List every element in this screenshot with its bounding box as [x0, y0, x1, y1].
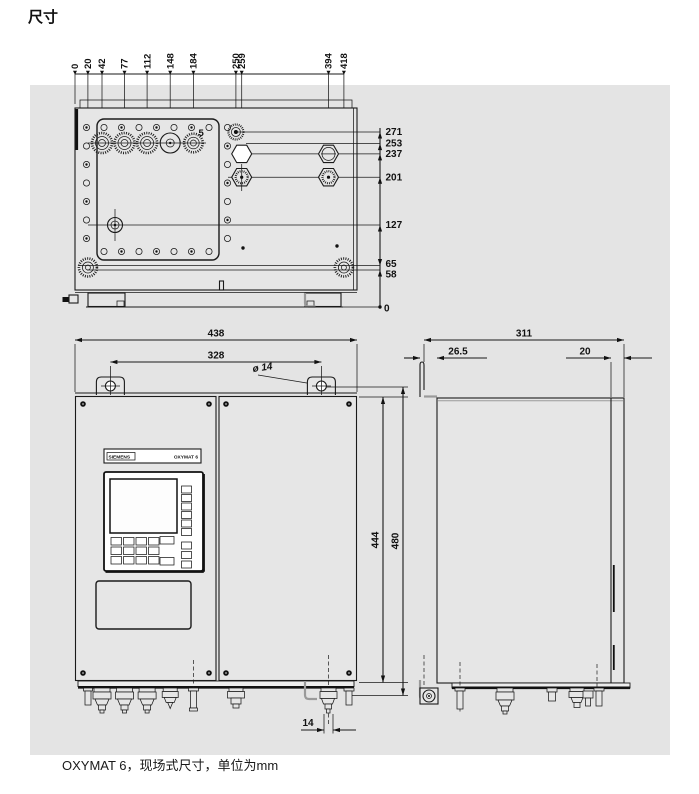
- function-key-column: [182, 542, 192, 568]
- dim-label: 480: [391, 532, 402, 549]
- control-panel: [104, 472, 204, 572]
- dimension-drawing: 尺寸 0 20 42 77 112 148 184 250 259 394 41…: [0, 0, 699, 794]
- dim-label: 328: [208, 351, 225, 362]
- dim-label: 418: [339, 53, 350, 69]
- figure-caption: OXYMAT 6，现场式尺寸，单位为mm: [62, 758, 278, 773]
- hex-gland: [319, 169, 339, 186]
- cabinet-side: [437, 398, 624, 683]
- dim-label: 444: [371, 531, 382, 548]
- dim-label: 26.5: [448, 347, 468, 358]
- brand-label: SIEMENS: [109, 454, 131, 460]
- item-number-label: 5: [199, 128, 205, 139]
- cover-plate: [83, 119, 230, 260]
- page: 尺寸 0 20 42 77 112 148 184 250 259 394 41…: [0, 0, 699, 794]
- dim-label: 271: [386, 127, 403, 138]
- hex-fitting: [319, 145, 339, 162]
- mounting-tab-left: [96, 377, 124, 395]
- display-screen: [110, 479, 177, 533]
- dim-label: 148: [165, 53, 176, 69]
- dim-label: 0: [70, 64, 81, 69]
- dim-label: 253: [386, 139, 403, 150]
- dim-label: 0: [384, 304, 390, 315]
- side-bottom-rail: [452, 683, 630, 688]
- dim-label: 20: [579, 347, 591, 358]
- dim-label: 14: [302, 718, 314, 729]
- model-label: OXYMAT 6: [174, 454, 198, 460]
- dim-label: 77: [120, 58, 131, 69]
- front-bottom-rail: [78, 681, 354, 687]
- dim-label: 127: [386, 220, 403, 231]
- dim-label: 42: [97, 58, 108, 69]
- dim-label: 65: [386, 259, 398, 270]
- dim-label: 311: [516, 329, 533, 340]
- page-title: 尺寸: [28, 8, 58, 26]
- dim-label: 259: [237, 53, 248, 69]
- center-tab: [220, 281, 224, 290]
- dim-label: 394: [324, 52, 335, 69]
- dim-label: 201: [386, 173, 403, 184]
- right-door: [219, 397, 357, 681]
- mounting-tab-right: [307, 377, 335, 395]
- dim-label: 20: [83, 58, 94, 69]
- brand-strip: SIEMENS OXYMAT 6: [104, 449, 201, 463]
- dim-label: 58: [386, 270, 398, 281]
- dim-label: 184: [189, 52, 200, 69]
- dim-label: 237: [386, 149, 403, 160]
- dim-label: 438: [208, 329, 225, 340]
- screw-dot: [335, 244, 338, 247]
- hex-plug: [232, 145, 252, 162]
- screw-dot: [241, 246, 244, 249]
- dim-label: 112: [142, 54, 153, 69]
